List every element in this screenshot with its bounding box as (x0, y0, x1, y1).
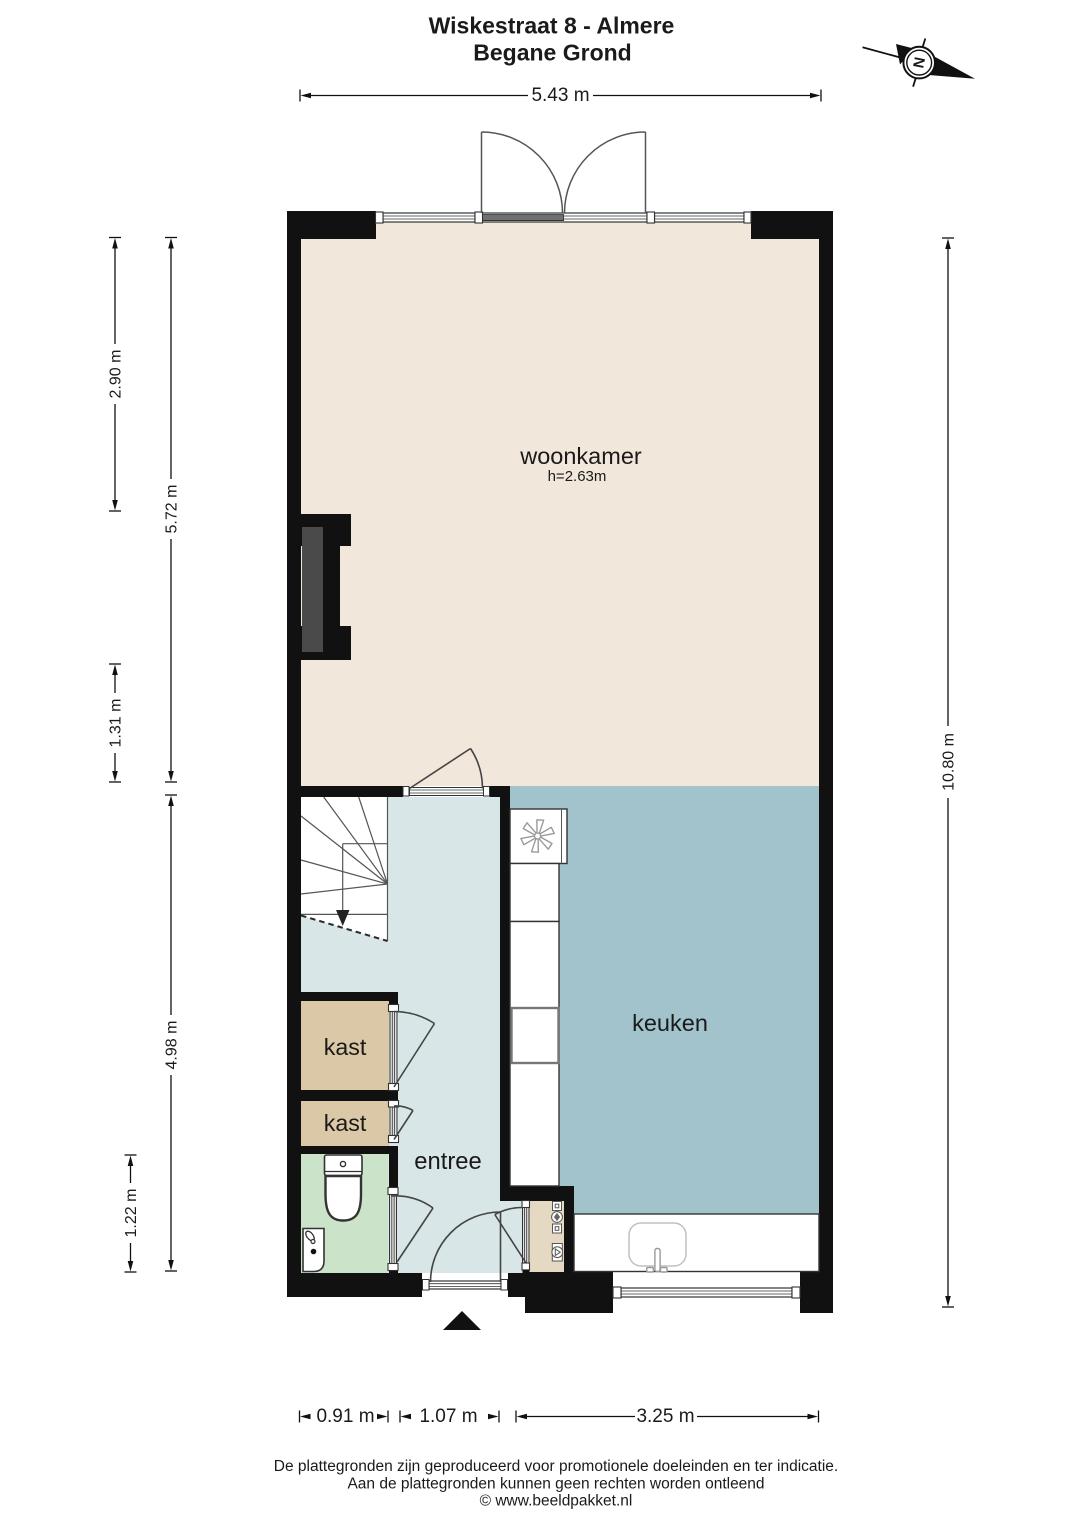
svg-text:kast: kast (324, 1034, 367, 1060)
svg-text:Wiskestraat 8 - Almere: Wiskestraat 8 - Almere (429, 13, 675, 39)
svg-text:Begane Grond: Begane Grond (473, 40, 631, 66)
svg-text:Aan de plattegronden kunnen ge: Aan de plattegronden kunnen geen rechten… (347, 1476, 764, 1493)
svg-text:4.98 m: 4.98 m (164, 1021, 181, 1070)
svg-text:10.80 m: 10.80 m (941, 733, 958, 791)
svg-text:De plattegronden zijn geproduc: De plattegronden zijn geproduceerd voor … (274, 1458, 838, 1475)
svg-text:3.25 m: 3.25 m (636, 1406, 694, 1427)
svg-text:0.91 m: 0.91 m (316, 1406, 374, 1427)
svg-text:1.31 m: 1.31 m (108, 699, 125, 748)
svg-text:5.72 m: 5.72 m (164, 485, 181, 534)
svg-text:2.90 m: 2.90 m (108, 350, 125, 399)
svg-text:5.43 m: 5.43 m (531, 85, 589, 106)
svg-text:1.07 m: 1.07 m (419, 1406, 477, 1427)
svg-text:entree: entree (414, 1148, 481, 1175)
svg-text:© www.beeldpakket.nl: © www.beeldpakket.nl (480, 1493, 633, 1510)
svg-text:keuken: keuken (632, 1010, 708, 1036)
svg-text:h=2.63m: h=2.63m (548, 468, 607, 485)
svg-text:1.22 m: 1.22 m (123, 1189, 140, 1238)
svg-text:kast: kast (324, 1110, 367, 1136)
svg-text:woonkamer: woonkamer (519, 443, 642, 469)
